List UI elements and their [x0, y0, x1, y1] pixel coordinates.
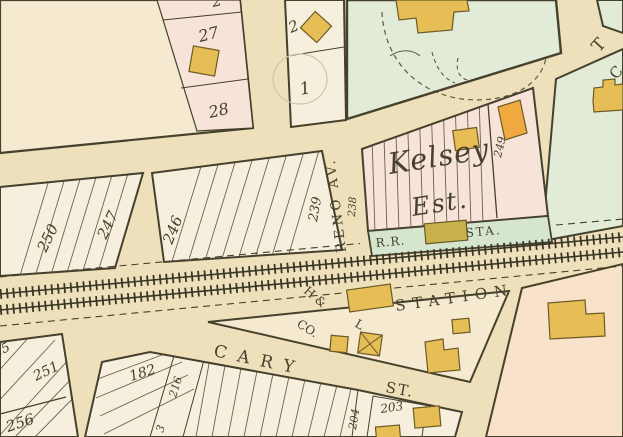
hl-co-label-1: H &: [301, 284, 329, 311]
map-svg: 2 27 28 2 1 250 247 246 239 238 249 25 2…: [0, 0, 623, 437]
building-lot-203: [413, 406, 441, 428]
block-green-corner: [597, 0, 623, 33]
lot-label-238: 238: [346, 196, 359, 218]
building-rr-station: [424, 220, 468, 244]
building-lot-203-partial: [375, 425, 400, 437]
rr-station-label-rr: R.R.: [375, 233, 406, 250]
block-lots-250-247: [0, 173, 143, 276]
block-green-right: [542, 49, 623, 241]
street-label-t-partial: T: [588, 34, 611, 56]
building-hl-co-crossed: [358, 332, 383, 356]
building-lot-27: [189, 46, 219, 76]
building-hl-co-small: [330, 335, 348, 352]
building-triangle-small: [452, 318, 470, 333]
historic-atlas-map[interactable]: 2 27 28 2 1 250 247 246 239 238 249 25 2…: [0, 0, 623, 437]
